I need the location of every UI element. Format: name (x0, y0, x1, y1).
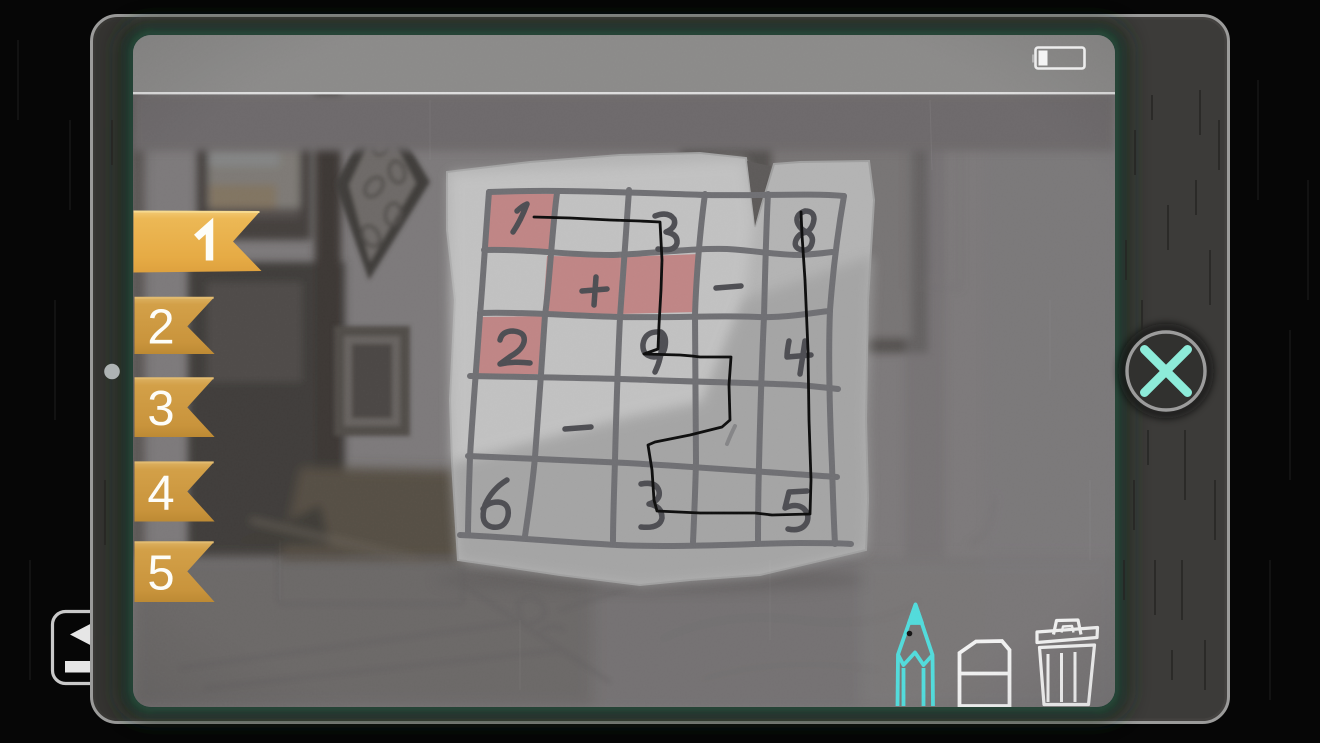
svg-text:2: 2 (147, 301, 174, 355)
svg-text:3: 3 (147, 382, 174, 436)
svg-text:4: 4 (147, 467, 174, 521)
svg-text:5: 5 (147, 547, 174, 601)
